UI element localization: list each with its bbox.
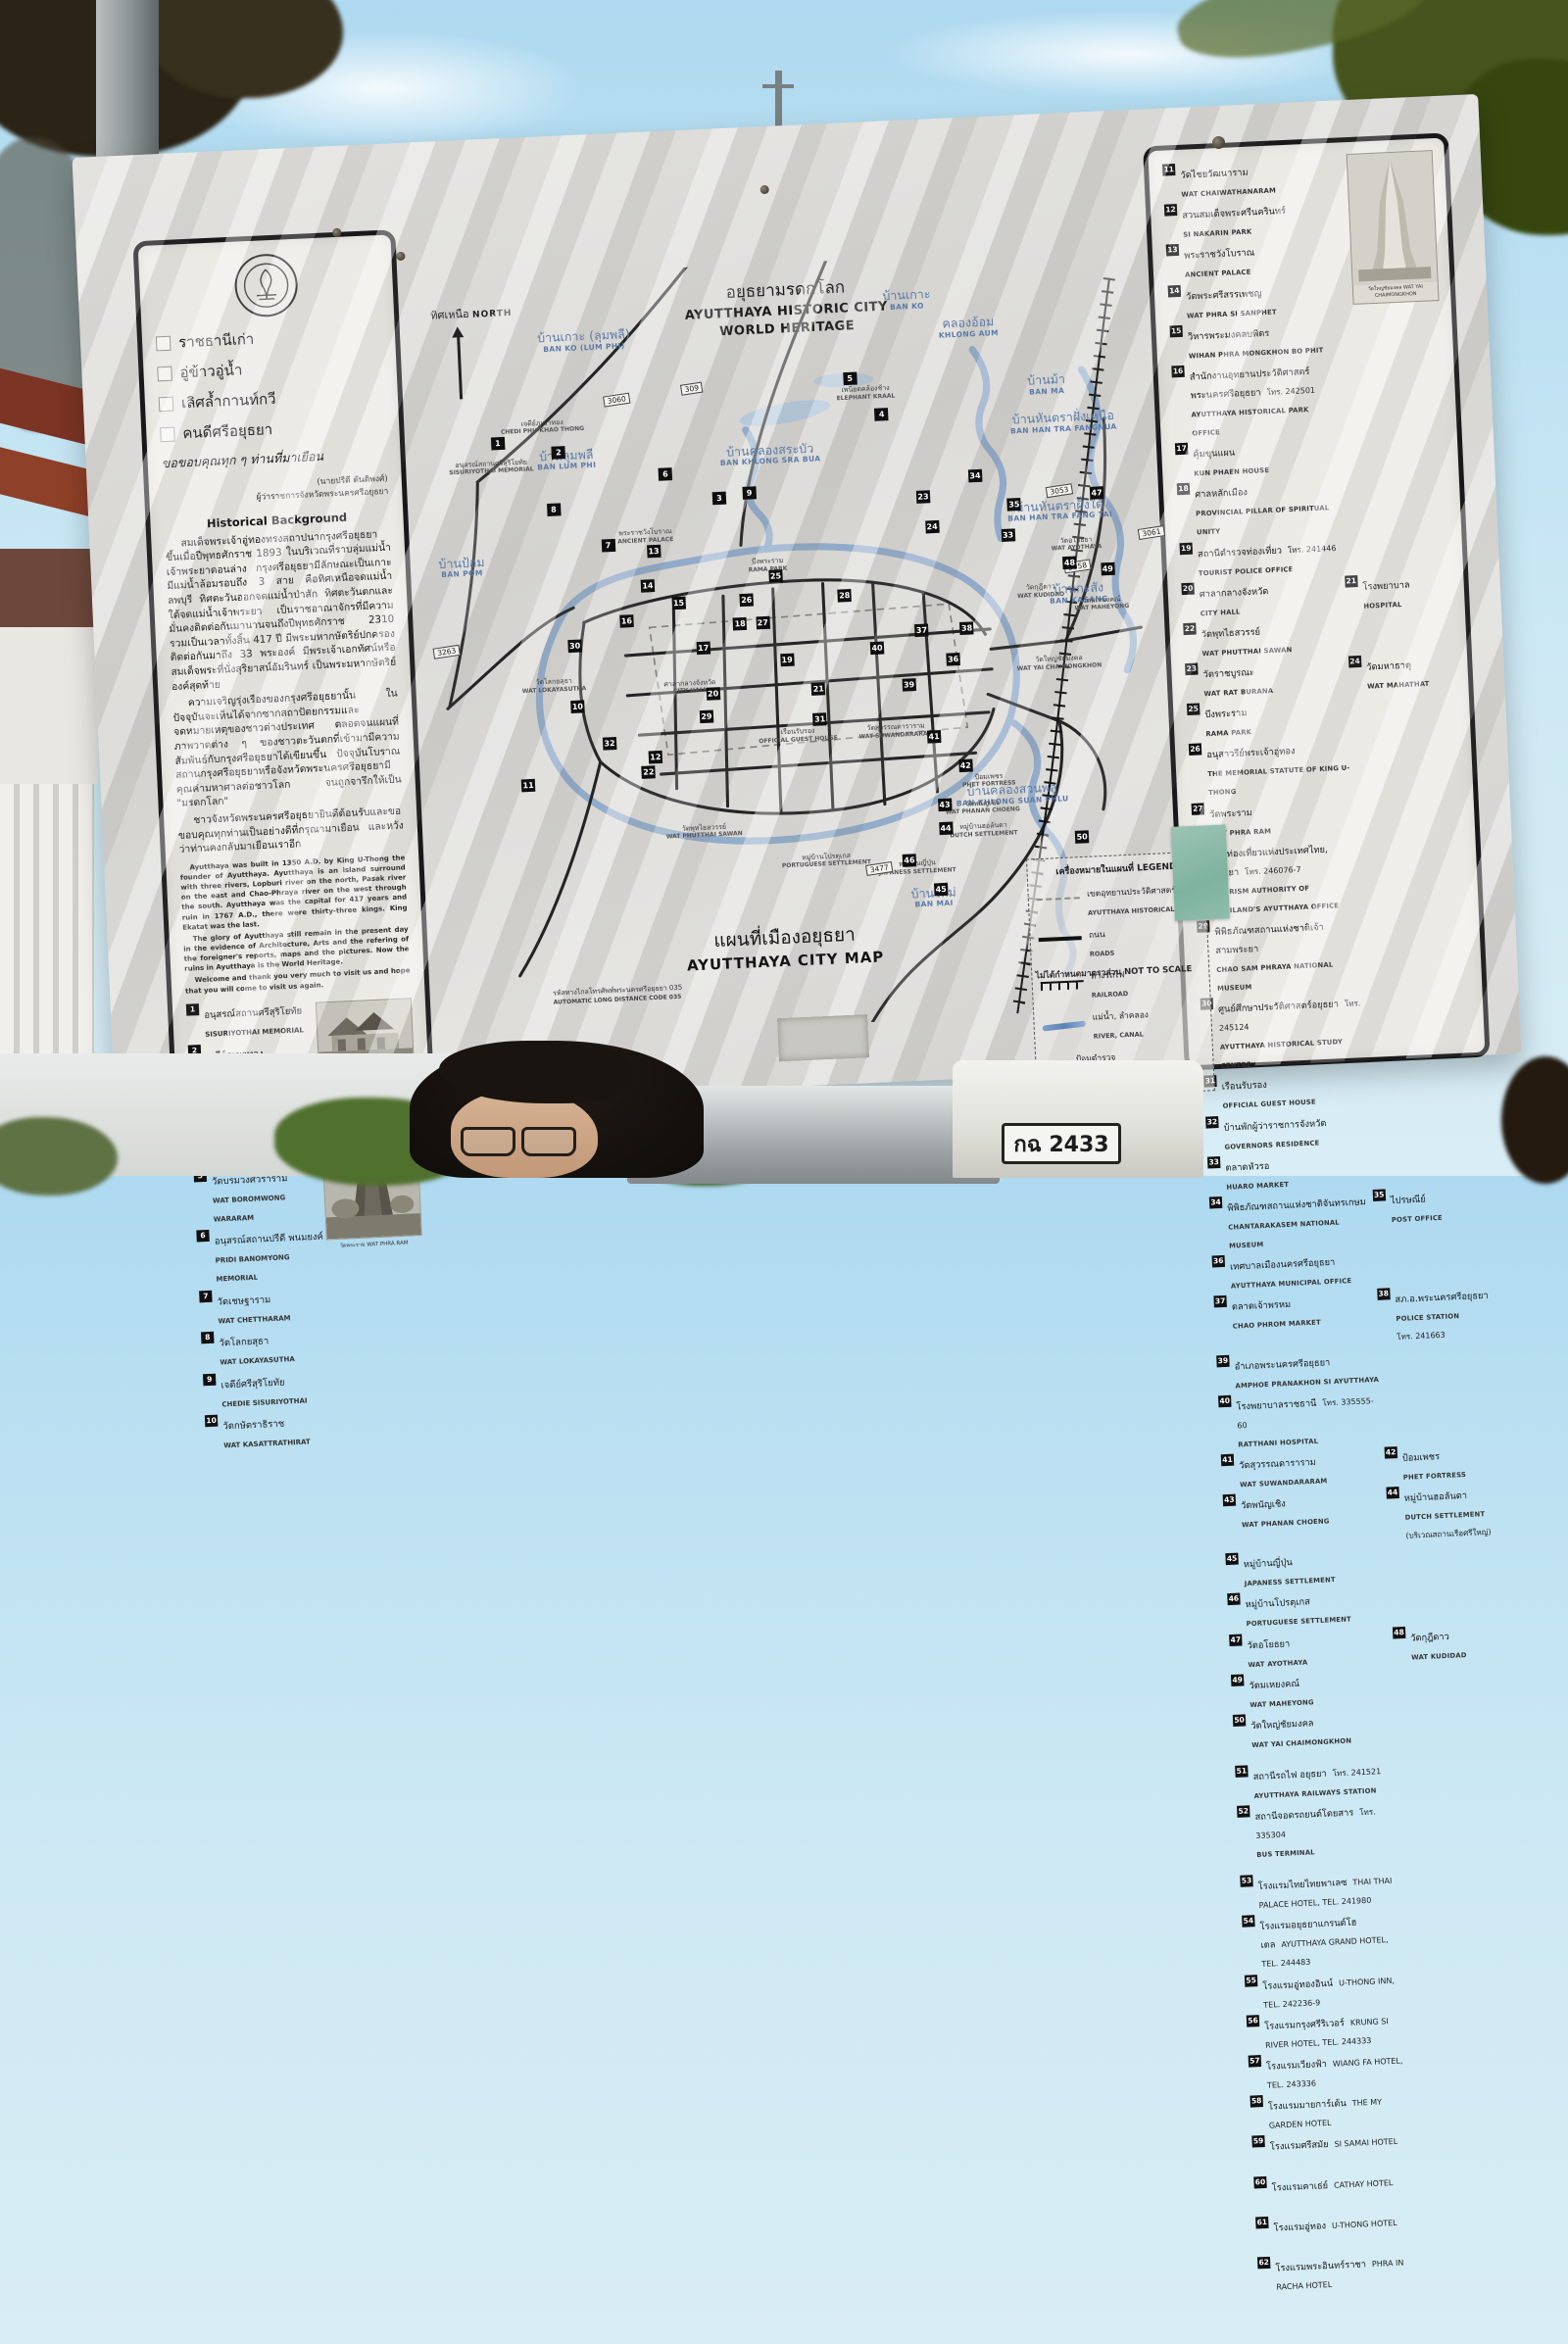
- slogan-row: คนดีศรีอยุธยา: [160, 413, 386, 446]
- historical-thai-para3: ชาวจังหวัดพระนครศรีอยุธยายินดีต้อนรับและ…: [177, 805, 405, 857]
- legend-symbol-icon: [1039, 936, 1083, 952]
- village-label: บ้านป้อมBAN POM: [438, 556, 485, 580]
- map-marker: 6: [659, 467, 673, 481]
- left-info-panel: ราชธานีเก่า อู่ข้าวอู่น้ำ เลิศล้ำกานท์กว…: [132, 229, 434, 1104]
- map-marker: 38: [959, 622, 974, 636]
- village-label: คลองอ้อมKHLONG AUM: [938, 315, 999, 340]
- map-marker: 39: [902, 678, 916, 692]
- map-marker: 27: [756, 615, 770, 629]
- map-marker: 22: [642, 766, 657, 780]
- map-marker: 44: [939, 821, 954, 835]
- map-marker: 16: [619, 614, 634, 628]
- site-label: วัดโลกยสุธาWAT LOKAYASUTHA: [521, 676, 586, 694]
- place-item: 8 วัดโลกยสุธา WAT LOKAYASUTHA: [201, 1327, 331, 1370]
- place-item: 1 อนุสรณ์สถานศรีสุริโยทัย SISURIYOTHAI M…: [186, 998, 317, 1041]
- legend-row: แม่น้ำ, ลำคลองRIVER, CANAL: [1042, 1000, 1204, 1044]
- historical-eng-para1: Ayutthaya was built in 1350 A.D. by King…: [179, 853, 408, 932]
- map-marker: 35: [1007, 498, 1022, 512]
- village-label: บ้านหันตราฝั่งใต้BAN HAN TRA FANG TAI: [1006, 496, 1112, 523]
- slogan-row: เลิศล้ำกานท์กวี: [158, 382, 384, 415]
- village-label: บ้านเกาะ (ลุมพลี)BAN KO (LUM PHI): [537, 327, 631, 354]
- map-marker: 10: [570, 701, 585, 714]
- map-marker: 24: [925, 520, 940, 534]
- place-item: 7 วัดเชษฐาราม WAT CHETTHARAM: [199, 1285, 329, 1328]
- map-marker: 30: [567, 640, 582, 654]
- map-marker: 2: [552, 446, 566, 460]
- worn-patch: [777, 1014, 869, 1061]
- photo-of-ayutthaya-map-sign: { "scene": { "license_plate": "กฉ 2433" …: [0, 0, 1568, 1176]
- slogan-row: ราชธานีเก่า: [156, 321, 382, 355]
- map-marker: 3: [712, 492, 727, 506]
- map-marker: 46: [903, 854, 917, 867]
- site-label: วัดมเหยงคณ์WAT MAHEYONG: [1074, 595, 1129, 612]
- map-marker: 18: [733, 616, 748, 630]
- map-marker: 43: [938, 799, 953, 812]
- map-marker: 1: [491, 437, 506, 451]
- legend-symbol-icon: [1037, 897, 1080, 910]
- village-label: บ้านลุมพลีBAN LUM PHI: [536, 447, 596, 471]
- index-row: 62 โรงแรมพระอินทร์ราชาPHRA IN RACHA HOTE…: [1257, 2245, 1531, 2295]
- map-marker: 48: [1062, 556, 1077, 569]
- map-marker: 23: [916, 490, 931, 504]
- screw: [760, 185, 769, 194]
- city-map: อยุธยามรดกโลก AYUTTHAYA HISTORIC CITY WO…: [408, 246, 1196, 1042]
- index-row: 34 พิพิธภัณฑสถานแห่งชาติจันทรเกษม CHANTA…: [1209, 1185, 1484, 1253]
- checkbox-icon: [156, 335, 171, 351]
- map-marker: 7: [601, 539, 615, 553]
- index-row: 43 วัดพนัญเชิง WAT PHANAN CHOENG 44 หมู่…: [1223, 1483, 1497, 1551]
- checkbox-icon: [157, 366, 172, 381]
- map-marker: 5: [843, 371, 857, 385]
- map-marker: 50: [1075, 830, 1090, 844]
- index-row: 18 ศาลหลักเมือง PROVINCIAL PILLAR OF SPI…: [1177, 471, 1451, 540]
- site-label: หมู่บ้านฮอลันดาDUTCH SETTLEMENT: [950, 821, 1018, 840]
- map-marker: 47: [1090, 486, 1104, 500]
- eyeglasses: [461, 1127, 582, 1152]
- slogan-list: ราชธานีเก่า อู่ข้าวอู่น้ำ เลิศล้ำกานท์กว…: [156, 321, 386, 446]
- index-rows: 11 วัดไชยวัฒนาราม WAT CHAIWATHANARAM: [1162, 152, 1531, 2294]
- village-label: บ้านคลองสระบัวBAN KHLONG SRA BUA: [719, 441, 821, 467]
- map-footer-title: แผนที่เมืองอยุธยา AYUTTHAYA CITY MAP: [685, 918, 884, 974]
- legend-symbol-icon: [1043, 1020, 1086, 1031]
- map-marker: 36: [946, 653, 960, 666]
- wat-phra-ram-caption: วัดพระราม WAT PHRA RAM: [340, 1241, 409, 1250]
- map-marker: 34: [968, 468, 983, 482]
- map-marker: 28: [838, 589, 853, 603]
- place-item: 10 วัดกษัตราธิราช WAT KASATTRATHIRAT: [205, 1410, 335, 1453]
- index-row: 52 สถานีจอดรถยนต์โดยสารโทร. 335304 BUS T…: [1237, 1793, 1511, 1862]
- map-signboard: ราชธานีเก่า อู่ข้าวอู่น้ำ เลิศล้ำกานท์กว…: [73, 94, 1522, 1117]
- site-label: ป้อมเพชรPHET FORTRESS: [962, 771, 1016, 789]
- white-building: [0, 627, 98, 784]
- index-row: 26 อนุสาวรีย์พระเจ้าอู่ทอง THE MEMORIAL …: [1189, 732, 1463, 801]
- map-marker: 26: [740, 594, 755, 608]
- map-marker: 19: [780, 653, 795, 666]
- map-marker: 13: [647, 545, 661, 559]
- signature: (นายปรีดี ตันติพงศ์) ผู้ว่าราชการจังหวัด…: [163, 473, 389, 509]
- screw: [396, 252, 405, 261]
- map-marker: 33: [1001, 528, 1015, 542]
- map-marker: 42: [958, 759, 973, 773]
- site-label: พระราชวังโบราณANCIENT PALACE: [617, 527, 674, 545]
- antenna-crossbar: [762, 84, 794, 88]
- map-marker: 14: [641, 579, 656, 593]
- historical-thai-para1: สมเด็จพระเจ้าอู่ทองทรงสถาปนากรุงศรีอยุธย…: [165, 526, 397, 694]
- index-row: 40 โรงพยาบาลราชธานีโทร. 335555-60 RATTHA…: [1218, 1383, 1493, 1451]
- index-row: 37 ตลาดเจ้าพรหม CHAO PHROM MARKET 38 สภ.…: [1213, 1284, 1488, 1352]
- index-row: 54 โรงแรมอยุธยาแกรนด์โฮเตลAYUTTHAYA GRAN…: [1242, 1904, 1516, 1973]
- checkbox-icon: [159, 396, 174, 412]
- map-marker: 41: [927, 730, 942, 744]
- index-row: 29 พิพิธภัณฑสถานแห่งชาติเจ้าสามพระยา CHA…: [1197, 908, 1472, 996]
- map-marker: 32: [603, 737, 617, 751]
- map-marker: 29: [700, 709, 714, 723]
- index-row: 50 วัดใหญ่ชัยมงคล WAT YAI CHAIMONGKHON: [1233, 1702, 1506, 1752]
- map-marker: 25: [768, 569, 783, 583]
- map-marker: 21: [811, 682, 826, 696]
- map-marker: 49: [1101, 562, 1115, 576]
- village-label: บ้านม้าBAN MA: [1027, 372, 1066, 396]
- map-marker: 15: [671, 597, 686, 610]
- map-marker: 31: [812, 712, 827, 726]
- screw: [1212, 136, 1226, 150]
- license-plate: กฉ 2433: [1002, 1123, 1121, 1164]
- checkbox-icon: [160, 426, 175, 442]
- site-label: วัดอโยธยาWAT AYOTHAYA: [1051, 535, 1102, 553]
- place-item: 6 อนุสรณ์สถานปรีดี พนมยงค์ PRIDI BANOMYO…: [196, 1225, 327, 1287]
- map-marker: 45: [934, 883, 949, 897]
- village-label: บ้านเกาะBAN KO: [882, 287, 931, 312]
- map-marker: 40: [870, 641, 885, 655]
- wat-yai-chaimongkhon-photo: วัดใหญ่ชัยมงคล WAT YAI CHAIMONGKHON: [1347, 150, 1440, 305]
- map-marker: 8: [547, 504, 562, 517]
- site-label: เพนียดคล้องช้างELEPHANT KRAAL: [836, 384, 895, 402]
- map-marker: 11: [521, 779, 536, 793]
- provincial-seal-icon: [233, 253, 299, 318]
- index-row: 28 การท่องเที่ยวแห่งประเทศไทย, อยุธยาโทร…: [1193, 831, 1468, 918]
- thanks-line: ขอขอบคุณทุก ๆ ท่านที่มาเยือน: [161, 444, 387, 473]
- site-label: วัดกุฎีดาวWAT KUDIDAO: [1017, 582, 1065, 600]
- slogan-row: อู่ข้าวอู่น้ำ: [157, 352, 383, 385]
- map-marker: 17: [696, 642, 710, 656]
- map-marker: 37: [914, 624, 929, 638]
- green-sticker: [1171, 824, 1230, 920]
- map-marker: 12: [649, 751, 663, 764]
- map-marker: 9: [742, 487, 757, 501]
- place-item: 9 เจดีย์ศรีสุริโยทัย CHEDIE SISURIYOTHAI: [203, 1368, 333, 1411]
- map-marker: 4: [874, 409, 889, 422]
- historical-thai-para2: ความเจริญรุ่งเรืองของกรุงศรีอยุธยานั้น ใ…: [172, 687, 403, 811]
- map-marker: 20: [706, 687, 720, 701]
- legend-row: ถนนROADS: [1038, 917, 1200, 961]
- index-row: 16 สำนักงานอุทยานประวัติศาสตร์พระนครศรีอ…: [1171, 354, 1446, 441]
